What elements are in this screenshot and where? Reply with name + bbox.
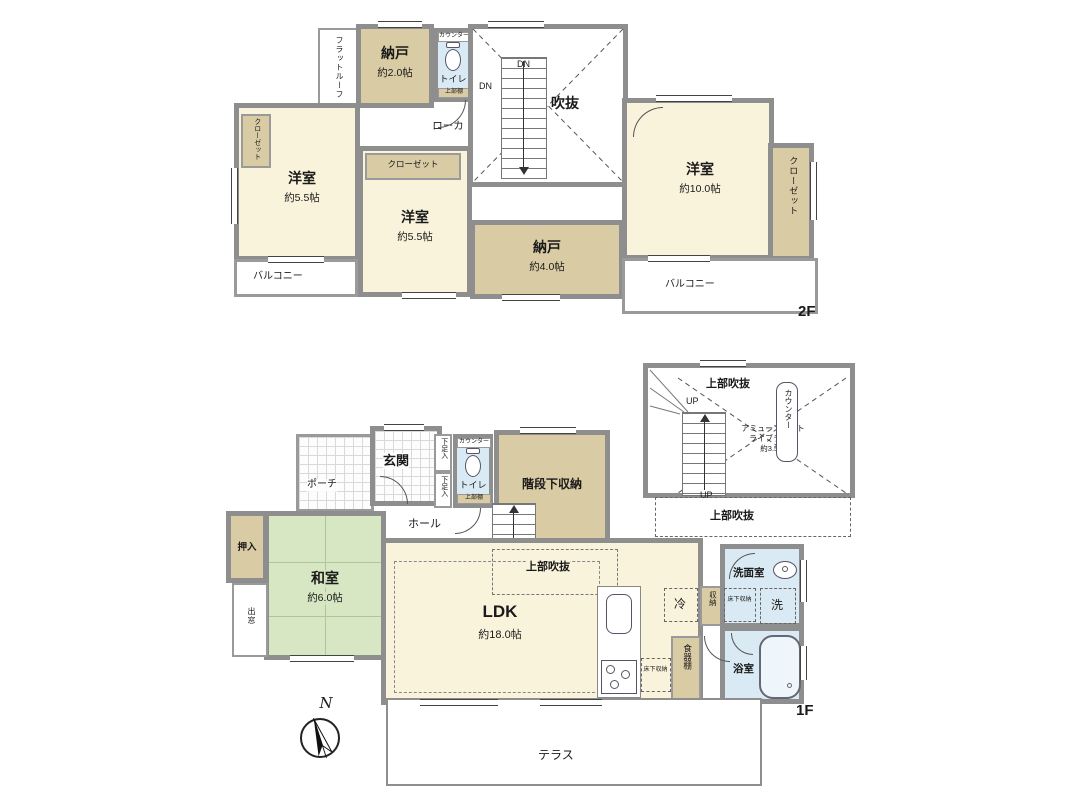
window [402, 292, 456, 299]
void-bottom-area: 上部吹抜 [655, 497, 851, 537]
void-2f-label: 吹抜 [551, 95, 579, 113]
storeroom-2f-large-size: 約4.0帖 [475, 261, 619, 274]
library-name-1: アミューズメント [730, 424, 816, 434]
stairwell-library-1f: 上部吹抜 UP UP アミューズメント ライブラリー 約3.5帖 カウンター [643, 363, 855, 498]
western-room-2f-mid: クローゼット 洋室 約5.5帖 [358, 146, 472, 297]
compass-icon [296, 712, 344, 760]
stairs-2f-dn2: DN [479, 81, 492, 92]
fridge-space: 冷 [664, 588, 698, 622]
washer-space: 洗 [760, 588, 796, 624]
library-counter: カウンター [776, 382, 798, 462]
terrace-door-arc [704, 636, 730, 662]
cupboard-label: 食器棚 [682, 644, 693, 670]
toilet-1f-shelf-label: 上部棚 [457, 494, 491, 504]
storeroom-2f-small-name: 納戸 [361, 45, 429, 63]
japanese-room-name: 和室 [279, 570, 371, 588]
toilet-2f: カウンター トイレ 上部棚 [434, 28, 472, 102]
stairs-up-label-1: UP [686, 396, 699, 407]
door-arc-western-right [633, 107, 663, 137]
cupboard: 食器棚 [671, 636, 701, 700]
western-room-2f-left-name: 洋室 [255, 170, 349, 188]
underfloor-storage-kitchen: 床下収納 [641, 658, 671, 692]
porch-label: ポーチ [307, 479, 337, 492]
void-x-lines [473, 29, 623, 182]
shoe-box-upper: 下足入 [434, 434, 452, 472]
window [800, 560, 807, 602]
bay-window-label: 出窓 [246, 607, 256, 625]
washer-label: 洗 [761, 598, 793, 613]
washbasin-icon [773, 561, 797, 579]
window [231, 168, 238, 224]
underfloor-storage-wash-label: 床下収納 [725, 597, 754, 604]
storeroom-2f-small-size: 約2.0帖 [361, 67, 429, 80]
balcony-2f-right: バルコニー [622, 258, 818, 314]
washroom-door-arc [729, 553, 755, 579]
bathroom: 浴室 [720, 626, 804, 704]
western-room-2f-mid-size: 約5.5帖 [368, 231, 462, 244]
compass-north-label: N [306, 694, 346, 712]
bathroom-door-arc [731, 633, 753, 655]
under-stair-storage-label: 階段下収納 [499, 477, 605, 492]
closet-2f-left: クローゼット [241, 114, 271, 168]
window [384, 424, 424, 431]
shoe-box-upper-label: 下足入 [439, 438, 448, 459]
stairs-up-arrow [700, 414, 710, 422]
stairs-1f-guide [704, 420, 705, 490]
shoe-box-lower-label: 下足入 [439, 476, 448, 497]
washbasin-drain [782, 566, 788, 572]
toilet-2f-bowl-icon [445, 49, 461, 71]
western-room-2f-left-size: 約5.5帖 [255, 192, 349, 205]
bathtub-icon [759, 635, 801, 699]
toilet-1f: カウンター トイレ 上部棚 [453, 434, 493, 508]
stairs-2f-guide [523, 61, 524, 169]
fridge-label: 冷 [665, 597, 695, 612]
void-top-label: 上部吹抜 [706, 378, 750, 392]
closet-2f-mid: クローゼット [365, 153, 461, 180]
library-size: 約3.5帖 [730, 444, 816, 453]
winder-steps [650, 370, 690, 414]
library-counter-label: カウンター [783, 389, 793, 429]
terrace-label: テラス [538, 748, 574, 763]
balcony-2f-right-label: バルコニー [665, 279, 715, 292]
closet-2f-left-label: クローゼット [252, 118, 261, 160]
tatami-line [269, 616, 381, 617]
window [488, 21, 544, 28]
stairs-2f-down-arrow [519, 167, 529, 175]
window [700, 360, 746, 367]
floor2-label: 2F [798, 303, 816, 322]
toilet-1f-counter-label: カウンター [457, 438, 491, 448]
tatami-line [269, 562, 381, 563]
closet-2f-mid-label: クローゼット [367, 159, 459, 170]
stairs-2f-dn1: DN [517, 59, 530, 70]
bathroom-label: 浴室 [733, 663, 754, 676]
window [656, 95, 732, 102]
burner [621, 670, 630, 679]
stairs-1f-lower-arrow [509, 505, 519, 513]
floor1-label: 1F [796, 702, 814, 721]
stairs-2f [501, 57, 547, 179]
ldk-size: 約18.0帖 [430, 629, 570, 643]
storeroom-2f-small: 納戸 約2.0帖 [356, 24, 434, 108]
stove-icon [601, 660, 637, 694]
library-name-2: ライブラリー [730, 434, 816, 444]
oshiire-label: 押入 [231, 542, 263, 554]
void-bottom-label: 上部吹抜 [710, 510, 754, 524]
window [268, 256, 324, 263]
burner [610, 680, 619, 689]
window [520, 427, 576, 434]
western-room-2f-mid-name: 洋室 [368, 209, 462, 227]
western-room-2f-right-name: 洋室 [653, 161, 747, 179]
burner [606, 665, 615, 674]
window [800, 646, 807, 680]
storeroom-2f-large: 納戸 約4.0帖 [470, 220, 624, 299]
western-room-2f-left: クローゼット 洋室 約5.5帖 [234, 103, 360, 261]
storage-small-label: 収納 [708, 591, 717, 606]
balcony-2f-left: バルコニー [234, 259, 358, 297]
flat-roof: フラットルーフ [318, 28, 360, 108]
toilet-1f-bowl-icon [465, 455, 481, 477]
bay-window: 出窓 [232, 583, 268, 657]
hall-label: ホール [408, 518, 441, 532]
balcony-2f-left-label: バルコニー [253, 271, 303, 284]
ldk-void-label: 上部吹抜 [526, 561, 570, 575]
window [648, 255, 710, 262]
japanese-room: 和室 約6.0帖 [264, 511, 386, 660]
shoe-box-lower: 下足入 [434, 472, 452, 508]
window [420, 699, 498, 706]
toilet-2f-shelf-label: 上部棚 [438, 88, 470, 98]
window [378, 21, 422, 28]
toilet-1f-name: トイレ [457, 480, 489, 491]
entrance-label: 玄関 [383, 453, 409, 469]
bathtub-drain [787, 683, 792, 688]
flat-roof-label: フラットルーフ [334, 36, 344, 99]
japanese-room-size: 約6.0帖 [279, 592, 371, 605]
underfloor-storage-kitchen-label: 床下収納 [642, 667, 669, 674]
window [290, 655, 354, 662]
ldk-name: LDK [430, 601, 570, 622]
toilet-1f-tank-icon [466, 448, 480, 454]
kitchen-sink-icon [606, 594, 632, 634]
window [810, 162, 817, 220]
window [540, 699, 602, 706]
window [502, 294, 560, 301]
underfloor-storage-wash: 床下収納 [724, 588, 756, 622]
toilet-2f-name: トイレ [438, 74, 468, 85]
terrace: テラス [386, 698, 762, 786]
oshiire-closet: 押入 [226, 511, 268, 583]
storeroom-2f-large-name: 納戸 [475, 239, 619, 257]
western-room-2f-right: 洋室 約10.0帖 [622, 98, 774, 260]
closet-2f-right-label: クローゼット [787, 156, 798, 216]
porch: ポーチ [296, 434, 374, 512]
stairwell-void-2f: DN DN 吹抜 [468, 24, 628, 187]
toilet-2f-counter-label: カウンター [438, 32, 470, 42]
western-room-2f-right-size: 約10.0帖 [653, 183, 747, 196]
toilet-2f-tank-icon [446, 42, 460, 48]
closet-2f-right: クローゼット [768, 143, 814, 261]
